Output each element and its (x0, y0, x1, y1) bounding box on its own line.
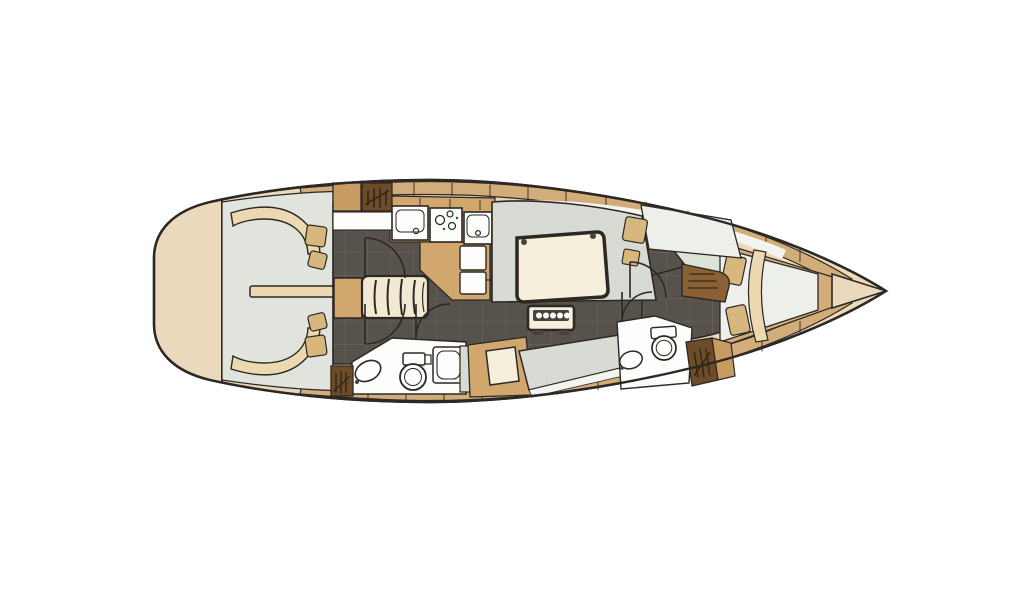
chart-table (486, 347, 519, 385)
seat-pad (305, 225, 328, 248)
shower-icon (433, 347, 464, 383)
bottle-rack (528, 306, 574, 335)
companionway (334, 276, 428, 318)
table-corner-fitting (521, 239, 527, 245)
galley-lockers (333, 183, 361, 211)
cockpit-table (250, 286, 336, 297)
table-corner-fitting (590, 233, 596, 239)
galley-sink (392, 206, 428, 240)
yacht-floor-plan-diagram (0, 0, 1024, 600)
engine-box (334, 278, 362, 318)
hanger-icon (334, 372, 349, 393)
seat-pad (307, 312, 327, 332)
galley-stove (430, 208, 462, 242)
seat-pad (305, 335, 328, 358)
saloon-table (517, 232, 608, 302)
toilet-icon (651, 326, 677, 360)
seat-pad (622, 249, 640, 267)
galley-sink-2 (464, 212, 492, 244)
companionway-steps (362, 276, 428, 318)
cockpit (222, 192, 336, 391)
seat-pad (307, 250, 327, 270)
pillow (622, 216, 648, 243)
yacht-floor-plan-page (0, 0, 1024, 600)
